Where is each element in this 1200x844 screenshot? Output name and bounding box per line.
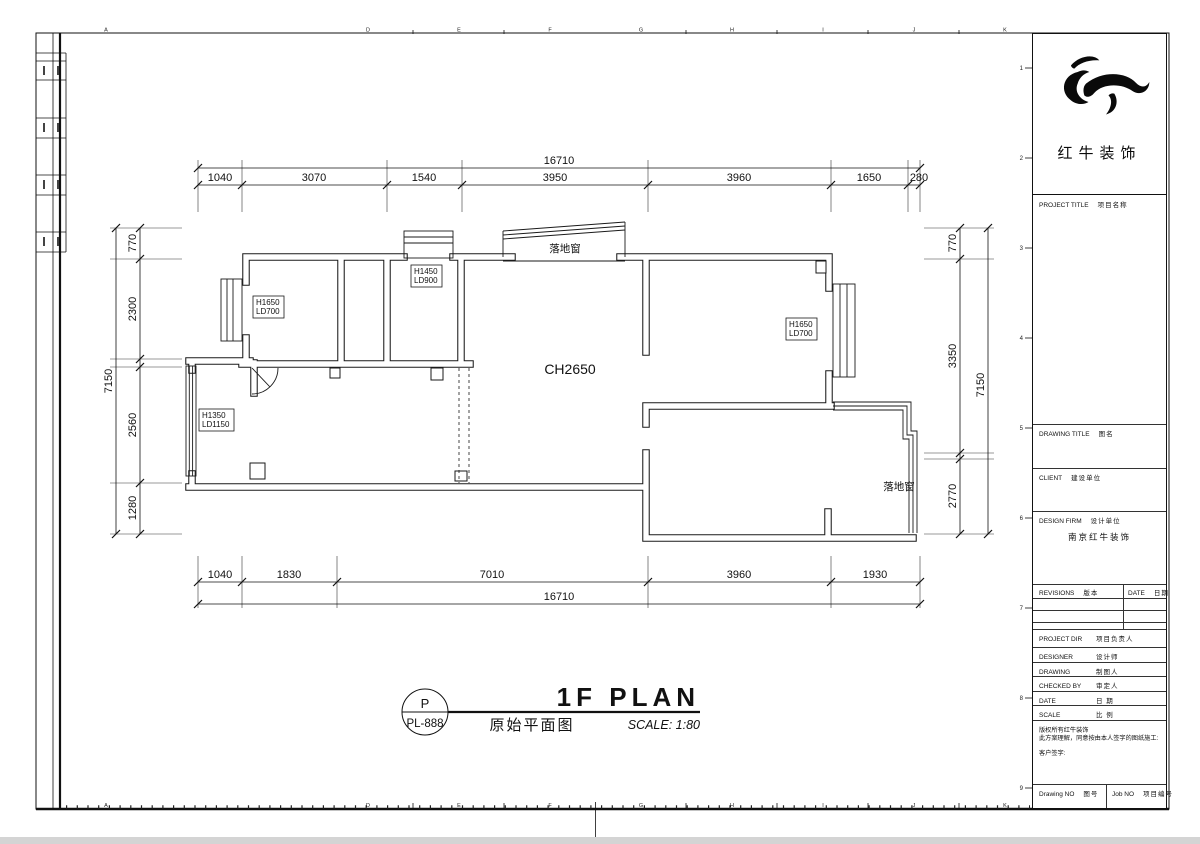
dim-left-seg: 2300 xyxy=(127,297,139,321)
drawing-sheet: A D E F G H I J K A D E F G H I J K 1 xyxy=(0,0,1200,844)
row-number: 3 xyxy=(1020,246,1024,252)
ruler-letter: E xyxy=(457,28,461,34)
revisions-en: REVISIONS xyxy=(1039,590,1074,597)
divider xyxy=(1033,676,1166,677)
divider xyxy=(1033,468,1166,469)
ruler-letter: A xyxy=(104,28,108,34)
job-no-en: Job NO xyxy=(1112,791,1134,798)
ruler-letter: K xyxy=(1003,803,1007,809)
window-tag-width: LD700 xyxy=(256,307,280,316)
dim-left-seg: 770 xyxy=(127,234,139,252)
window-tag-height: H1650 xyxy=(789,320,813,329)
window-tag-height: H1450 xyxy=(414,267,438,276)
drawing-title-group: P PL-888 1F PLAN 原始平面图 SCALE: 1:80 xyxy=(402,682,700,735)
ruler-letter: G xyxy=(639,803,643,809)
divider xyxy=(1033,584,1166,585)
dim-top-seg: 3070 xyxy=(302,172,326,184)
date-row: DATE 日 期 xyxy=(1039,695,1164,705)
plan-badge-code: PL-888 xyxy=(406,718,443,730)
redbull-logo-icon xyxy=(1051,48,1151,136)
row-number: 5 xyxy=(1020,426,1024,432)
drawing-row: DRAWING 制图人 xyxy=(1039,666,1164,676)
brand-name: 红牛装饰 xyxy=(1033,142,1166,163)
designer-row: DESIGNER 设计师 xyxy=(1039,651,1164,661)
rev-date-cn: 日期 xyxy=(1154,587,1169,597)
dimension-left: 7150 770 2300 2560 1280 xyxy=(103,224,182,538)
ruler-letter: D xyxy=(366,803,370,809)
dim-left-total: 7150 xyxy=(103,369,115,393)
dim-left-seg: 1280 xyxy=(127,496,139,520)
checked-by-cn: 审定人 xyxy=(1096,680,1119,690)
design-firm-en: DESIGN FIRM xyxy=(1039,518,1082,525)
ruler-letter: E xyxy=(457,803,461,809)
row-number: 9 xyxy=(1020,786,1024,792)
checked-by-en: CHECKED BY xyxy=(1039,683,1087,690)
row-number: 1 xyxy=(1020,66,1024,72)
client-en: CLIENT xyxy=(1039,475,1062,482)
plan-title: 1F PLAN xyxy=(557,682,700,712)
designer-en: DESIGNER xyxy=(1039,654,1087,661)
dim-right-seg: 770 xyxy=(947,234,959,252)
divider xyxy=(1033,424,1166,425)
client-signature-label: 客户签字: xyxy=(1039,750,1163,758)
dim-right-total: 7150 xyxy=(975,373,987,397)
plan-scale: SCALE: 1:80 xyxy=(628,718,700,732)
design-firm-header: DESIGN FIRM 设计单位 xyxy=(1039,515,1164,525)
job-no-cell: Job NO 项目编号 xyxy=(1112,788,1164,798)
plan-badge-letter: P xyxy=(421,696,430,711)
divider xyxy=(1033,647,1166,648)
floor-window-label-top: 落地窗 xyxy=(549,242,581,255)
divider xyxy=(1033,610,1166,611)
drawing-no-en: Drawing NO xyxy=(1039,791,1074,798)
wall-tabs xyxy=(250,261,826,481)
scale-cn: 比 例 xyxy=(1096,709,1114,719)
signature-strip-marks xyxy=(43,66,59,246)
ruler-letter: J xyxy=(913,803,916,809)
walls xyxy=(189,257,913,538)
drawing-cn: 制图人 xyxy=(1096,666,1119,676)
ceiling-height-label: CH2650 xyxy=(544,361,596,377)
revisions-date-header: DATE 日期 xyxy=(1128,587,1164,597)
divider xyxy=(1033,511,1166,512)
dim-top-seg: 3950 xyxy=(543,172,567,184)
project-dir-row: PROJECT DIR 项目负责人 xyxy=(1039,633,1164,643)
dim-bottom-total: 16710 xyxy=(544,591,575,603)
dim-top-seg: 1540 xyxy=(412,172,436,184)
window-tag-height: H1650 xyxy=(256,298,280,307)
date-en: DATE xyxy=(1039,698,1087,705)
project-title-en: PROJECT TITLE xyxy=(1039,202,1089,209)
row-number-ruler: 1 2 3 4 5 6 7 8 9 xyxy=(1020,66,1032,792)
drawing-title-header: DRAWING TITLE 图名 xyxy=(1039,428,1164,438)
dimension-bottom: 1040 1830 7010 3960 1930 16710 xyxy=(194,556,924,608)
job-no-cn: 项目编号 xyxy=(1143,788,1173,798)
drawing-title-en: DRAWING TITLE xyxy=(1039,431,1090,438)
dimension-top: 16710 1040 3070 1540 3950 3960 1650 280 xyxy=(194,155,928,212)
project-dir-en: PROJECT DIR xyxy=(1039,636,1087,643)
dim-bottom-seg: 1830 xyxy=(277,569,301,581)
ruler-letter: D xyxy=(366,28,370,34)
client-cn: 建设单位 xyxy=(1071,472,1101,482)
scale-row: SCALE 比 例 xyxy=(1039,709,1164,719)
client-header: CLIENT 建设单位 xyxy=(1039,472,1164,482)
window-tag-height: H1350 xyxy=(202,411,226,420)
dim-right-seg: 3350 xyxy=(947,344,959,368)
dim-bottom-seg: 3960 xyxy=(727,569,751,581)
floor-plan-canvas: A D E F G H I J K A D E F G H I J K 1 xyxy=(0,0,1200,844)
window-tag-width: LD900 xyxy=(414,276,438,285)
window-tag-width: LD700 xyxy=(789,329,813,338)
scale-en: SCALE xyxy=(1039,712,1087,719)
drawing-no-cn: 图号 xyxy=(1083,788,1098,798)
ruler-letter: K xyxy=(1003,28,1007,34)
ruler-letter: H xyxy=(730,28,734,34)
row-number: 4 xyxy=(1020,336,1024,342)
ruler-letter: A xyxy=(104,803,108,809)
drawing-title-cn: 图名 xyxy=(1099,428,1114,438)
design-firm-cn: 设计单位 xyxy=(1091,515,1121,525)
dim-top-seg: 280 xyxy=(910,172,928,184)
row-number: 6 xyxy=(1020,516,1024,522)
ruler-letter: H xyxy=(730,803,734,809)
plan-subtitle: 原始平面图 xyxy=(489,717,574,734)
divider xyxy=(1033,598,1166,599)
project-dir-cn: 项目负责人 xyxy=(1096,633,1134,643)
divider xyxy=(1033,720,1166,721)
rev-date-en: DATE xyxy=(1128,590,1145,597)
row-number: 7 xyxy=(1020,606,1024,612)
copyright-note: 版权所有红牛装饰 xyxy=(1039,727,1163,735)
project-title-header: PROJECT TITLE 项目名称 xyxy=(1039,199,1164,209)
row-number: 2 xyxy=(1020,156,1024,162)
divider xyxy=(1033,691,1166,692)
ruler-letter: G xyxy=(639,28,643,34)
divider xyxy=(1033,705,1166,706)
screenshot-bottom-band xyxy=(0,837,1200,844)
divider xyxy=(1033,629,1166,630)
dim-left-seg: 2560 xyxy=(127,413,139,437)
dim-bottom-seg: 1040 xyxy=(208,569,232,581)
dim-top-seg: 1040 xyxy=(208,172,232,184)
divider xyxy=(1033,662,1166,663)
dim-top-total: 16710 xyxy=(544,155,575,167)
dashed-wall-lines xyxy=(459,368,469,483)
agreement-note: 此方案理解，同意按由本人签字的图纸施工: xyxy=(1039,735,1163,743)
floor-window-label-right: 落地窗 xyxy=(883,480,915,493)
ruler-letter: J xyxy=(913,28,916,34)
design-firm-name: 南京红牛装饰 xyxy=(1033,531,1166,543)
revisions-cn: 版本 xyxy=(1083,587,1098,597)
window-tag-width: LD1150 xyxy=(202,420,230,429)
dimension-right: 7150 770 3350 2770 xyxy=(924,224,994,538)
checked-by-row: CHECKED BY 审定人 xyxy=(1039,680,1164,690)
dim-top-seg: 1650 xyxy=(857,172,881,184)
designer-cn: 设计师 xyxy=(1096,651,1119,661)
date-cn: 日 期 xyxy=(1096,695,1114,705)
dim-top-seg: 3960 xyxy=(727,172,751,184)
dim-right-seg: 2770 xyxy=(947,484,959,508)
drawing-en: DRAWING xyxy=(1039,669,1087,676)
project-title-cn: 项目名称 xyxy=(1098,199,1128,209)
divider xyxy=(1033,194,1166,195)
title-block: 红牛装饰 PROJECT TITLE 项目名称 DRAWING TITLE 图名… xyxy=(1032,33,1167,809)
row-number: 8 xyxy=(1020,696,1024,702)
dim-bottom-seg: 7010 xyxy=(480,569,504,581)
divider xyxy=(1033,622,1166,623)
divider xyxy=(1033,784,1166,785)
dim-bottom-seg: 1930 xyxy=(863,569,887,581)
